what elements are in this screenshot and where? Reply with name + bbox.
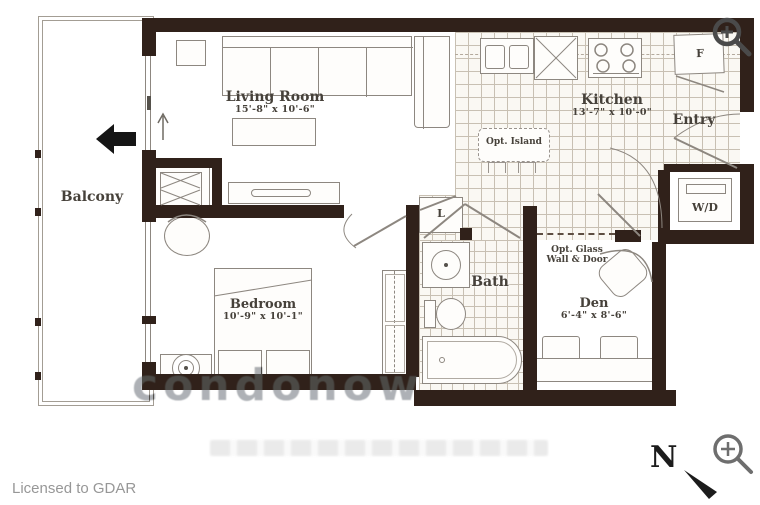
zoom-in-icon[interactable] [706,428,758,480]
entry-label: Entry [652,113,736,128]
toilet-tank [424,300,436,328]
wall-laundry-bottom [658,230,740,244]
floor-plan: Balcony [0,0,760,505]
laundry-label: W/D [670,202,740,214]
washer-dryer-unit [678,178,732,222]
wall-right-mid [740,164,754,244]
glass-wall-note-line2: Wall & Door [535,256,619,266]
wall-den-right [652,242,666,394]
bedroom-window [142,222,156,362]
living-room-dims: 15'-8" x 10'-6" [215,105,335,115]
zoom-in-icon[interactable] [706,12,754,60]
round-chair [164,216,210,256]
wall-bedroom-top [142,205,344,218]
sofa-chaise [414,36,450,128]
bedroom-dims: 10'-9" x 10'-1" [203,312,323,322]
wall-top [142,18,754,32]
island-stool [518,162,536,173]
wall-bedroom-bath [406,205,419,377]
watermark-text: condonow [132,360,424,411]
up-arrow-icon [158,114,168,140]
wall-utility-right [212,158,222,216]
coffee-table [232,118,316,146]
balcony-sliding-door [142,56,156,150]
den-dims: 6'-4" x 8'-6" [552,311,636,321]
den-sofa-pillow [542,336,580,359]
bedroom-door-arc [344,214,356,248]
island-label: Opt. Island [479,138,549,148]
balcony-label: Balcony [50,190,134,205]
compass-north-label: N [650,440,677,475]
wall-den-top-jamb [615,230,641,242]
side-table [176,40,206,66]
linen-closet-label: L [424,208,458,220]
tv-console [228,182,340,204]
balcony-railing-inner [42,20,150,402]
island-stool [488,162,506,173]
watermark-strip [210,440,548,456]
bath-label: Bath [450,275,530,290]
toilet-bowl [436,298,466,330]
bathtub [422,336,522,384]
utility-closet-inner [160,172,202,206]
railing-post [35,318,41,326]
kitchen-sink [480,38,534,74]
stove [588,38,642,78]
den-sofa-pillow [600,336,638,359]
bedroom-door-leaf [354,216,406,246]
den-sofa-seat [536,358,654,382]
wall-laundry-top [664,164,740,172]
sofa-sectional [222,36,412,96]
dishwasher [534,36,578,80]
railing-post [35,150,41,158]
wall-bottom-bath-den [414,390,676,406]
kitchen-island: Opt. Island [478,128,550,162]
license-text: Licensed to GDAR [12,480,136,497]
balcony-railing-outer [38,16,154,406]
wall-bath-den [523,206,537,394]
wall-bath-door-jamb [460,228,472,240]
railing-post [35,208,41,216]
wall-left-upper [142,18,156,60]
railing-post [35,372,41,380]
optional-glass-wall [537,233,615,235]
